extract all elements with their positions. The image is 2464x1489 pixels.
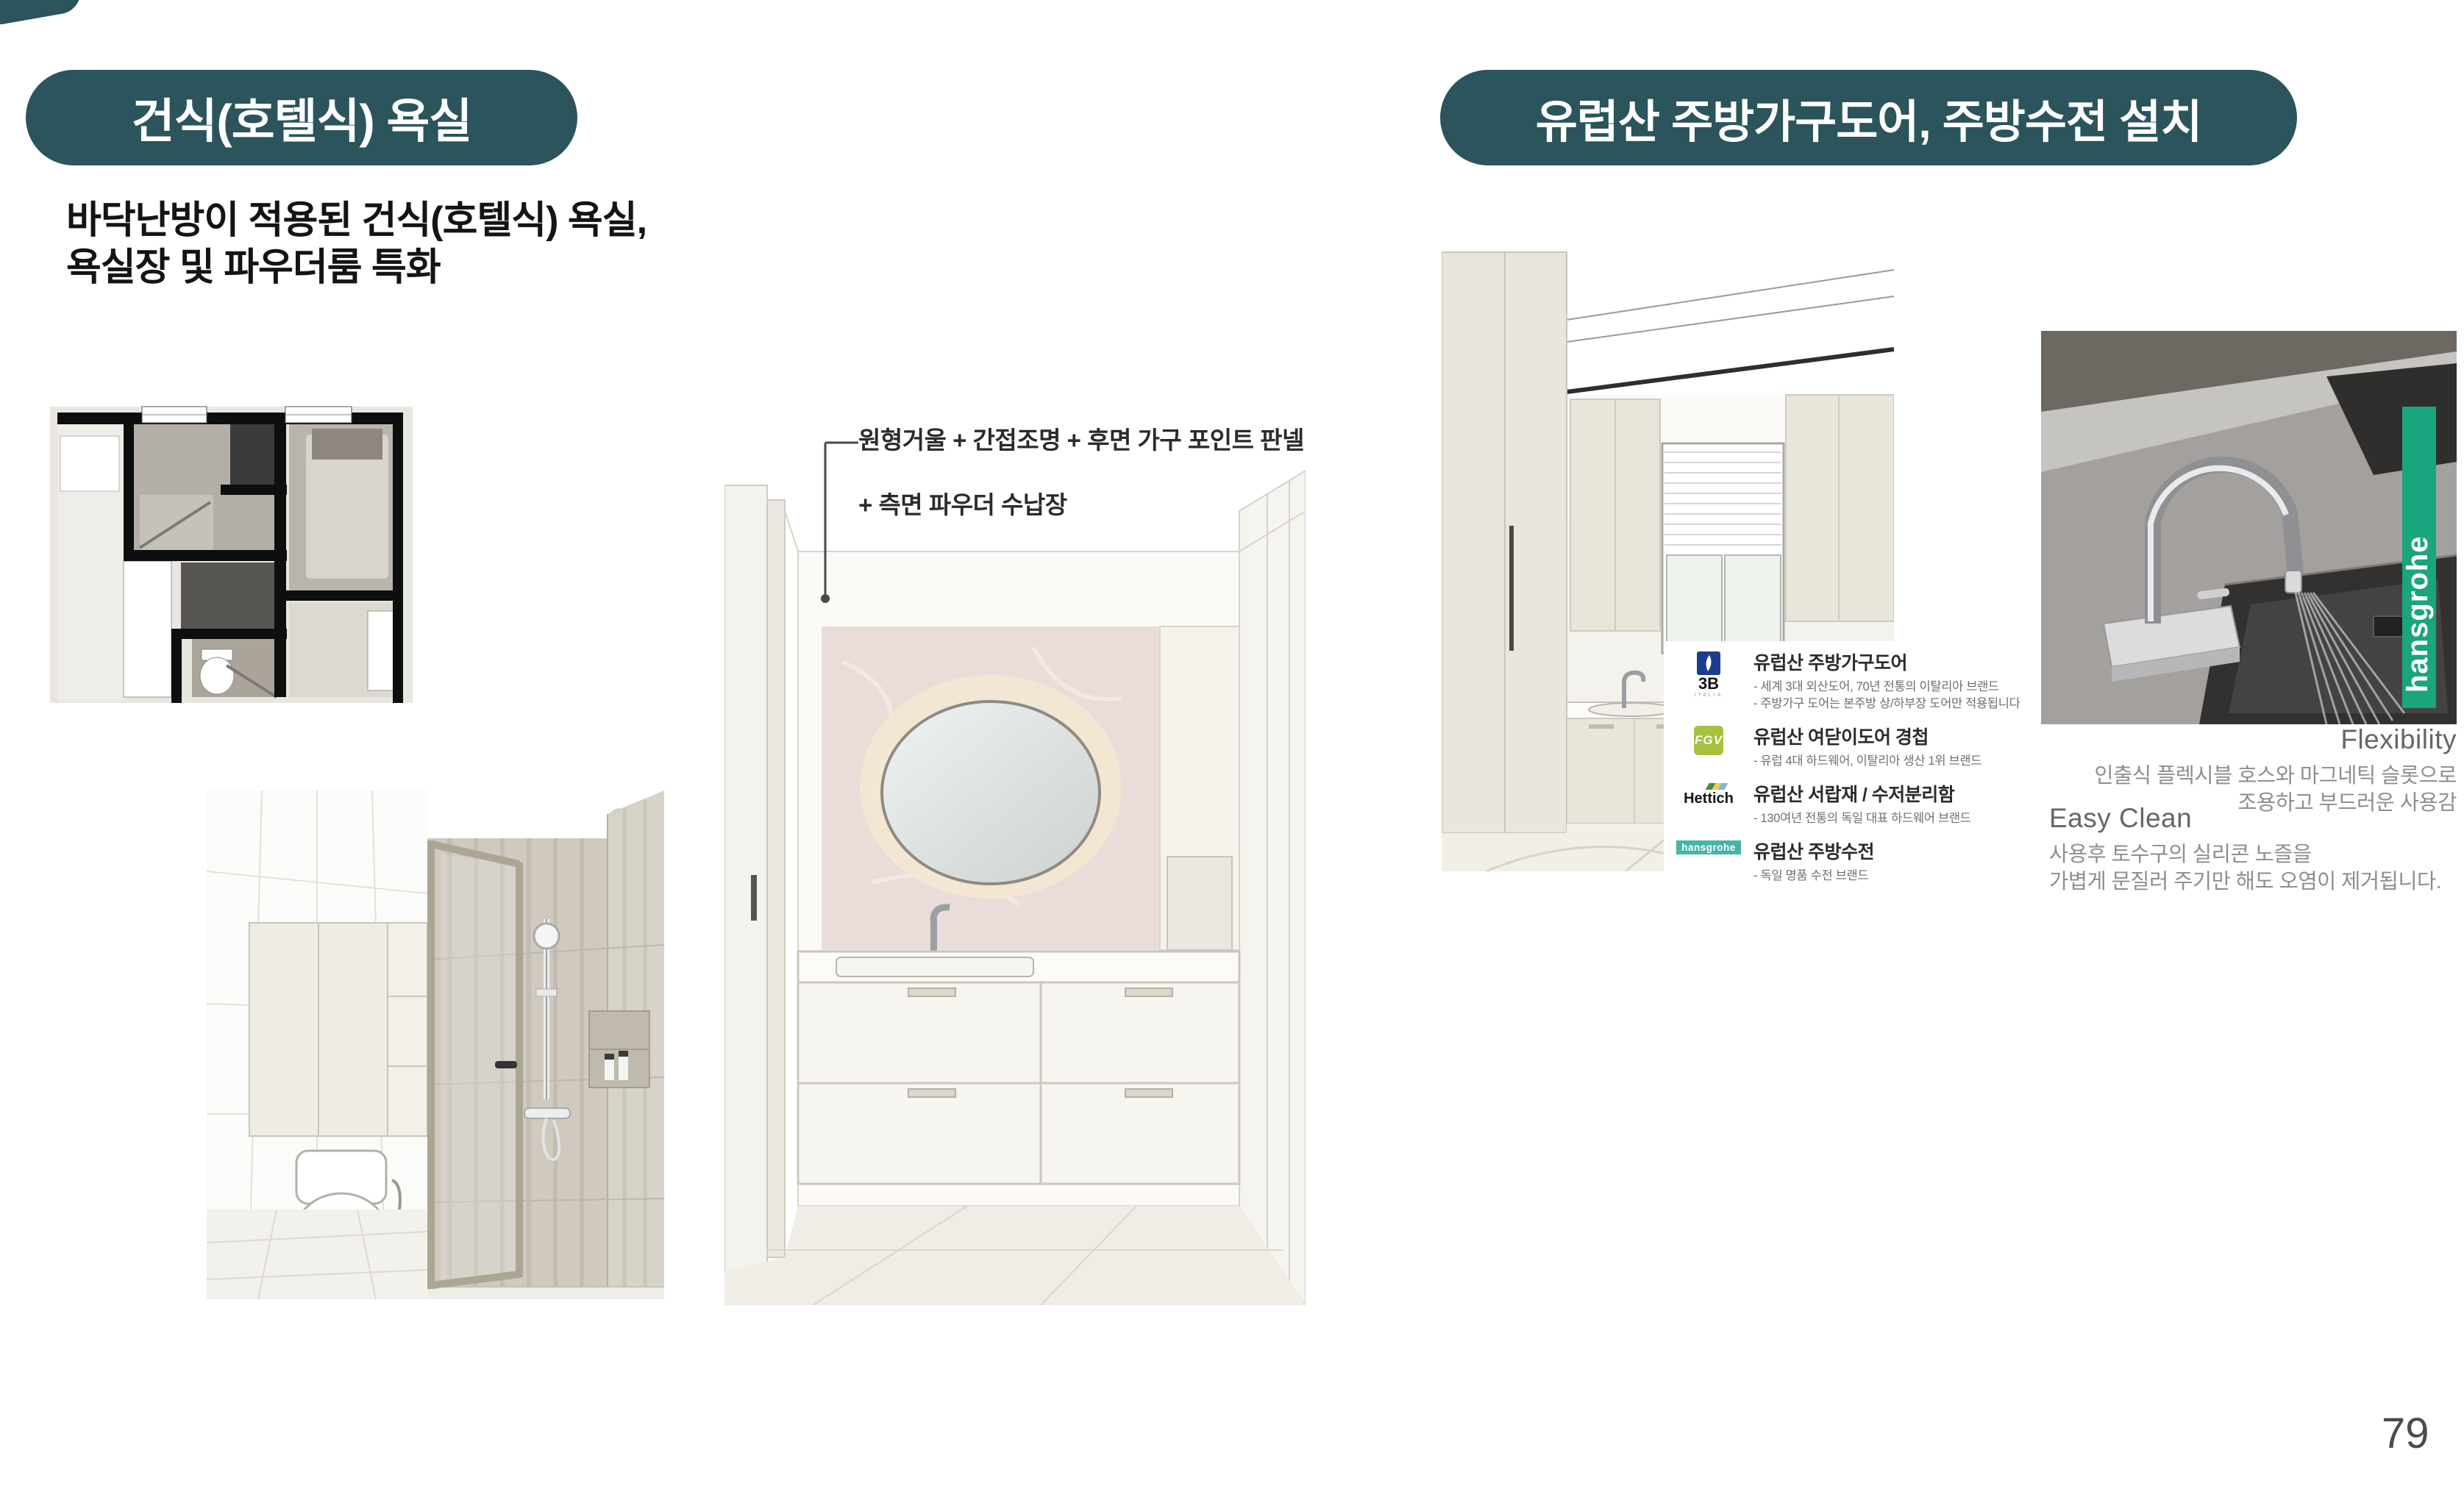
page-number: 79 bbox=[2382, 1409, 2429, 1458]
fgv-logo-icon: FGV bbox=[1694, 726, 1723, 755]
brand-logo-hettich: Hettich bbox=[1664, 780, 1753, 807]
dry-bathroom-render-image bbox=[207, 768, 664, 1299]
brand-desc-3: - 독일 명품 수전 브랜드 bbox=[1753, 868, 2028, 885]
powder-annotation-line1: 원형거울 + 간접조명 + 후면 가구 포인트 판넬 bbox=[858, 421, 1304, 456]
annotation-callout-line bbox=[805, 435, 864, 608]
hettich-logo-text: Hettich bbox=[1684, 790, 1734, 807]
hansgrohe-tab-label: hansgrohe bbox=[2401, 536, 2434, 693]
brand-row-3b: 3B ITALIA 유럽산 주방가구도어 - 세계 3대 외산도어, 70년 전… bbox=[1664, 649, 2028, 713]
left-section-badge: 건식(호텔식) 욕실 bbox=[26, 70, 577, 165]
brand-title-3: 유럽산 주방수전 bbox=[1753, 838, 2028, 864]
brand-desc-0a: - 세계 3대 외산도어, 70년 전통의 이탈리아 브랜드 bbox=[1753, 679, 2028, 696]
hettich-flag-icon bbox=[1705, 783, 1728, 790]
corner-decoration bbox=[0, 0, 84, 28]
flexibility-title: Flexibility bbox=[1868, 724, 2457, 755]
brand-logo-3b: 3B ITALIA bbox=[1664, 649, 1753, 698]
easy-clean-line1: 사용후 토수구의 실리콘 노즐을 bbox=[2049, 841, 2464, 868]
brand-logo-fgv: FGV bbox=[1664, 723, 1753, 755]
faucet-photo: hansgrohe bbox=[2041, 331, 2457, 724]
brand-desc-0b: - 주방가구 도어는 본주방 상/하부장 도어만 적용됩니다 bbox=[1753, 696, 2028, 713]
brand-logo-hansgrohe: hansgrohe bbox=[1664, 838, 1753, 854]
powder-annotation-line2: + 측면 파우더 수납장 bbox=[858, 485, 1304, 521]
3b-leaf-icon bbox=[1703, 655, 1714, 671]
3b-logo-icon bbox=[1697, 651, 1720, 675]
easy-clean-title: Easy Clean bbox=[2049, 803, 2464, 834]
left-badge-label: 건식(호텔식) 욕실 bbox=[132, 84, 472, 151]
hansgrohe-logo-icon: hansgrohe bbox=[1676, 840, 1741, 854]
right-badge-label: 유럽산 주방가구도어, 주방수전 설치 bbox=[1536, 85, 2202, 151]
feature-easy-clean: Easy Clean 사용후 토수구의 실리콘 노즐을 가볍게 문질러 주기만 … bbox=[2049, 803, 2464, 896]
bathroom-floor-plan-image bbox=[50, 392, 413, 703]
hettich-logo-icon: Hettich bbox=[1684, 783, 1734, 807]
3b-logo-subtext: ITALIA bbox=[1695, 693, 1723, 698]
left-description-line2: 욕실장 및 파우더룸 특화 bbox=[66, 244, 647, 291]
flexibility-line1: 인출식 플렉시블 호스와 마그네틱 슬롯으로 bbox=[1868, 763, 2457, 790]
faucet-drawing: hansgrohe bbox=[2041, 331, 2457, 724]
left-description-line1: 바닥난방이 적용된 건식(호텔식) 욕실, bbox=[66, 197, 647, 244]
brand-row-hansgrohe: hansgrohe 유럽산 주방수전 - 독일 명품 수전 브랜드 bbox=[1664, 838, 2028, 885]
bathroom-drawing bbox=[207, 768, 664, 1299]
left-description: 바닥난방이 적용된 건식(호텔식) 욕실, 욕실장 및 파우더룸 특화 bbox=[66, 197, 647, 291]
right-section-badge: 유럽산 주방가구도어, 주방수전 설치 bbox=[1440, 70, 2297, 165]
brand-title-0: 유럽산 주방가구도어 bbox=[1753, 649, 2028, 675]
3b-logo-text: 3B bbox=[1698, 676, 1719, 692]
easy-clean-line2: 가볍게 문질러 주기만 해도 오염이 제거됩니다. bbox=[2049, 868, 2464, 896]
floor-plan-drawing bbox=[50, 392, 413, 703]
powder-annotation: 원형거울 + 간접조명 + 후면 가구 포인트 판넬 + 측면 파우더 수납장 bbox=[858, 421, 1304, 521]
